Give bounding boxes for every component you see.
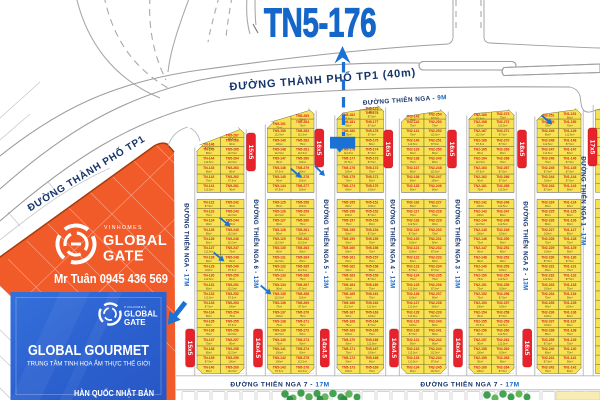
svg-text:TN2-246: TN2-246 (496, 200, 509, 204)
svg-text:TN5-259: TN5-259 (296, 210, 309, 214)
svg-text:80m²: 80m² (477, 259, 483, 263)
svg-text:TN2-231: TN2-231 (541, 265, 554, 269)
svg-text:80m²: 80m² (500, 213, 506, 217)
svg-text:87.5m²: 87.5m² (566, 169, 574, 173)
svg-text:75m²: 75m² (432, 231, 438, 235)
svg-text:TN2-247: TN2-247 (428, 175, 441, 179)
svg-text:TN5-171: TN5-171 (365, 175, 378, 179)
svg-text:TN5-144: TN5-144 (273, 184, 286, 188)
svg-text:TN5-255: TN5-255 (226, 320, 239, 324)
svg-text:ĐƯỜNG THIÊN NGA 7 - 17M: ĐƯỜNG THIÊN NGA 7 - 17M (230, 380, 329, 389)
svg-text:TN2-237: TN2-237 (541, 320, 554, 324)
svg-text:112.5m²: 112.5m² (498, 332, 507, 336)
svg-text:100m²: 100m² (544, 231, 551, 235)
svg-text:TN5-170: TN5-170 (365, 184, 378, 188)
svg-text:TN2-253: TN2-253 (428, 120, 441, 124)
svg-text:TN5-166: TN5-166 (365, 338, 378, 342)
svg-text:112.5m²: 112.5m² (228, 350, 237, 354)
svg-text:TN5-135: TN5-135 (273, 292, 286, 296)
svg-text:GATE: GATE (124, 318, 146, 327)
svg-text:VINHOMES: VINHOMES (124, 305, 146, 309)
svg-text:80m²: 80m² (369, 142, 375, 146)
svg-text:TN2-250: TN2-250 (428, 148, 441, 152)
svg-text:TN2-240: TN2-240 (428, 320, 441, 324)
svg-text:TN5-158: TN5-158 (342, 228, 355, 232)
svg-text:100m²: 100m² (477, 369, 484, 373)
svg-text:80m²: 80m² (276, 160, 282, 164)
svg-text:90m²: 90m² (206, 222, 212, 226)
svg-text:TN5-151: TN5-151 (273, 122, 286, 126)
svg-text:112.5m²: 112.5m² (275, 259, 284, 263)
svg-text:TN5-169: TN5-169 (365, 365, 378, 369)
svg-text:TN2-246: TN2-246 (428, 184, 441, 188)
svg-text:TN5-276: TN5-276 (296, 365, 309, 369)
svg-text:TN1-139: TN1-139 (563, 338, 576, 342)
svg-text:80m²: 80m² (545, 213, 551, 217)
svg-text:TN5-172: TN5-172 (365, 166, 378, 170)
svg-text:80m²: 80m² (477, 250, 483, 254)
svg-text:TN5-155: TN5-155 (365, 237, 378, 241)
svg-text:TN1-130: TN1-130 (563, 255, 576, 259)
svg-text:100m²: 100m² (544, 323, 551, 327)
svg-text:80m²: 80m² (346, 259, 352, 263)
svg-text:100m²: 100m² (205, 268, 212, 272)
svg-text:75m²: 75m² (369, 296, 375, 300)
svg-text:TN2-226: TN2-226 (541, 219, 554, 223)
svg-text:90m²: 90m² (369, 360, 375, 364)
svg-text:ĐƯỜNG THIÊN NGA 7 - 17M: ĐƯỜNG THIÊN NGA 7 - 17M (420, 380, 519, 389)
svg-text:80m²: 80m² (300, 250, 306, 254)
svg-text:90m²: 90m² (346, 296, 352, 300)
svg-text:90m²: 90m² (346, 241, 352, 245)
svg-text:TN2-251: TN2-251 (496, 246, 509, 250)
svg-text:112.5m²: 112.5m² (275, 151, 284, 155)
svg-text:TN2-253: TN2-253 (496, 265, 509, 269)
svg-text:80m²: 80m² (346, 124, 352, 128)
svg-text:TN5-143: TN5-143 (273, 365, 286, 369)
svg-text:112.5m²: 112.5m² (367, 341, 376, 345)
svg-text:TN-144: TN-144 (203, 157, 214, 161)
svg-text:TN5-250: TN5-250 (226, 274, 239, 278)
svg-text:100m²: 100m² (544, 179, 551, 183)
svg-text:112.5m²: 112.5m² (204, 277, 213, 281)
svg-text:TN2-235: TN2-235 (541, 301, 554, 305)
svg-text:TN2-231: TN2-231 (428, 237, 441, 241)
svg-text:TN5-174: TN5-174 (342, 184, 355, 188)
svg-text:80m²: 80m² (567, 231, 573, 235)
svg-text:112.5m²: 112.5m² (204, 296, 213, 300)
svg-text:75m²: 75m² (432, 124, 438, 128)
svg-text:TN-136: TN-136 (203, 329, 214, 333)
svg-text:90m²: 90m² (545, 268, 551, 272)
svg-text:75m²: 75m² (477, 268, 483, 272)
svg-text:TN1-134: TN1-134 (563, 292, 576, 296)
svg-text:TN5-175: TN5-175 (365, 138, 378, 142)
svg-text:90m²: 90m² (545, 204, 551, 208)
svg-text:TN2-261: TN2-261 (496, 338, 509, 342)
svg-text:75m²: 75m² (206, 341, 212, 345)
svg-text:TN1-149: TN1-149 (563, 129, 576, 133)
svg-text:TN2-122: TN2-122 (406, 255, 419, 259)
svg-text:TN2-233: TN2-233 (541, 283, 554, 287)
svg-text:87.5m²: 87.5m² (275, 188, 283, 192)
svg-text:TN5-164: TN5-164 (365, 320, 378, 324)
svg-text:90m²: 90m² (567, 204, 573, 208)
svg-text:TN5-248: TN5-248 (226, 255, 239, 259)
svg-text:87.5m²: 87.5m² (499, 133, 507, 137)
svg-text:TN5-157: TN5-157 (365, 255, 378, 259)
svg-text:90m²: 90m² (477, 341, 483, 345)
svg-text:TN5-265: TN5-265 (226, 148, 239, 152)
svg-text:80m²: 80m² (300, 259, 306, 263)
svg-text:75m²: 75m² (410, 277, 416, 281)
svg-text:112.5m²: 112.5m² (298, 268, 307, 272)
svg-text:90m²: 90m² (229, 204, 235, 208)
svg-text:112.5m²: 112.5m² (565, 133, 574, 137)
svg-text:TN-137: TN-137 (203, 338, 214, 342)
svg-text:TN2-246: TN2-246 (541, 157, 554, 161)
svg-text:TN-124: TN-124 (203, 219, 214, 223)
svg-text:TN2-151: TN2-151 (474, 283, 487, 287)
svg-text:100m²: 100m² (566, 305, 573, 309)
svg-text:100m²: 100m² (299, 188, 306, 192)
svg-text:14x4.5: 14x4.5 (321, 338, 328, 359)
svg-text:TN1-129: TN1-129 (563, 246, 576, 250)
svg-text:TN2-254: TN2-254 (428, 113, 441, 117)
svg-text:TN5-169: TN5-169 (342, 329, 355, 333)
svg-text:100m²: 100m² (345, 286, 352, 290)
svg-text:TN5-163: TN5-163 (365, 310, 378, 314)
svg-text:TN2-139: TN2-139 (406, 148, 419, 152)
svg-text:TN5-285: TN5-285 (296, 114, 309, 118)
svg-text:TN5-254: TN5-254 (226, 310, 239, 314)
svg-text:TN5-266: TN5-266 (296, 274, 309, 278)
svg-text:ĐƯỜNG THIÊN NGA 1 - 17M: ĐƯỜNG THIÊN NGA 1 - 17M (580, 156, 588, 245)
svg-text:TN5-282: TN5-282 (296, 138, 309, 142)
svg-text:TN2-268: TN2-268 (496, 157, 509, 161)
svg-text:100m²: 100m² (276, 314, 283, 318)
svg-text:80m²: 80m² (206, 241, 212, 245)
svg-text:TN2-272: TN2-272 (496, 120, 509, 124)
svg-text:TN2-138: TN2-138 (406, 157, 419, 161)
svg-text:100m²: 100m² (368, 350, 375, 354)
svg-text:100m²: 100m² (499, 305, 506, 309)
svg-text:TN-135: TN-135 (203, 320, 214, 324)
svg-text:100m²: 100m² (477, 350, 484, 354)
svg-text:75m²: 75m² (432, 213, 438, 217)
svg-text:VINHOMES: VINHOMES (104, 225, 143, 231)
svg-text:100m²: 100m² (299, 231, 306, 235)
svg-text:75m²: 75m² (276, 341, 282, 345)
svg-text:75m²: 75m² (369, 369, 375, 373)
svg-text:112.5m²: 112.5m² (275, 241, 284, 245)
svg-text:87.5m²: 87.5m² (298, 286, 306, 290)
svg-text:TN2-269: TN2-269 (496, 148, 509, 152)
svg-text:90m²: 90m² (477, 360, 483, 364)
svg-text:TN1-138: TN1-138 (563, 329, 576, 333)
svg-text:TN2-256: TN2-256 (496, 292, 509, 296)
svg-text:TN5-164: TN5-164 (342, 283, 355, 287)
svg-text:TN2-273: TN2-273 (496, 112, 509, 116)
svg-text:TN5-258: TN5-258 (226, 347, 239, 351)
svg-text:87.5m²: 87.5m² (368, 213, 376, 217)
svg-text:TN5-262: TN5-262 (226, 175, 239, 179)
svg-text:TN5-260: TN5-260 (296, 219, 309, 223)
svg-text:TN5-147: TN5-147 (273, 157, 286, 161)
svg-text:ĐƯỜNG THIÊN NGA 4 - 13M: ĐƯỜNG THIÊN NGA 4 - 13M (389, 199, 397, 288)
svg-text:75m²: 75m² (410, 133, 416, 137)
svg-text:TN-128: TN-128 (203, 255, 214, 259)
svg-text:75m²: 75m² (346, 133, 352, 137)
svg-text:90m²: 90m² (300, 169, 306, 173)
svg-text:112.5m²: 112.5m² (498, 323, 507, 327)
svg-text:TN2-230: TN2-230 (541, 255, 554, 259)
svg-text:87.5m²: 87.5m² (476, 323, 484, 327)
svg-text:TN5-165: TN5-165 (365, 329, 378, 333)
svg-text:87.5m²: 87.5m² (431, 142, 439, 146)
svg-text:80m²: 80m² (369, 268, 375, 272)
svg-text:112.5m²: 112.5m² (476, 222, 485, 226)
svg-text:TN1-145: TN1-145 (563, 166, 576, 170)
svg-text:112.5m²: 112.5m² (275, 332, 284, 336)
svg-text:75m²: 75m² (477, 286, 483, 290)
svg-text:87.5m²: 87.5m² (228, 323, 236, 327)
svg-text:TN5-268: TN5-268 (296, 292, 309, 296)
svg-text:15x5: 15x5 (247, 145, 254, 160)
svg-text:TN-138: TN-138 (203, 347, 214, 351)
svg-text:TN2-155: TN2-155 (474, 320, 487, 324)
svg-text:TN2-156: TN2-156 (474, 329, 487, 333)
svg-text:100m²: 100m² (544, 314, 551, 318)
svg-text:87.5m²: 87.5m² (476, 169, 484, 173)
svg-text:87.5m²: 87.5m² (368, 151, 376, 155)
svg-text:87.5m²: 87.5m² (499, 314, 507, 318)
svg-text:TN2-266: TN2-266 (496, 175, 509, 179)
svg-text:TN-141: TN-141 (203, 184, 214, 188)
svg-text:TN5-156: TN5-156 (342, 210, 355, 214)
svg-text:GLOBAL: GLOBAL (103, 233, 167, 249)
svg-text:TN2-159: TN2-159 (474, 356, 487, 360)
svg-text:80m²: 80m² (410, 169, 416, 173)
svg-text:TN-130: TN-130 (203, 274, 214, 278)
svg-text:75m²: 75m² (206, 179, 212, 183)
svg-text:TN5-138: TN5-138 (273, 320, 286, 324)
svg-text:TN2-149: TN2-149 (474, 265, 487, 269)
svg-text:TN5-264: TN5-264 (226, 157, 239, 161)
svg-text:80m²: 80m² (477, 314, 483, 318)
svg-text:87.5m²: 87.5m² (544, 341, 552, 345)
svg-text:TN1-146: TN1-146 (563, 157, 576, 161)
svg-text:90m²: 90m² (410, 341, 416, 345)
svg-text:80m²: 80m² (206, 369, 212, 373)
svg-text:112.5m²: 112.5m² (275, 213, 284, 217)
svg-text:112.5m²: 112.5m² (298, 360, 307, 364)
svg-text:100m²: 100m² (368, 314, 375, 318)
svg-text:TN5-262: TN5-262 (296, 237, 309, 241)
svg-text:90m²: 90m² (500, 360, 506, 364)
svg-text:80m²: 80m² (545, 350, 551, 354)
svg-text:TN2-164: TN2-164 (474, 157, 487, 161)
svg-text:75m²: 75m² (206, 332, 212, 336)
svg-text:TN2-141: TN2-141 (406, 129, 419, 133)
svg-text:TN5-173: TN5-173 (342, 365, 355, 369)
svg-text:TN2-262: TN2-262 (496, 347, 509, 351)
svg-text:87.5m²: 87.5m² (499, 169, 507, 173)
svg-text:TN2-241: TN2-241 (541, 356, 554, 360)
svg-text:100m²: 100m² (368, 204, 375, 208)
svg-text:100m²: 100m² (431, 179, 438, 183)
svg-text:100m²: 100m² (499, 268, 506, 272)
svg-text:ĐƯỜNG THIÊN NGA - 17M: ĐƯỜNG THIÊN NGA - 17M (183, 203, 191, 286)
svg-text:80m²: 80m² (432, 204, 438, 208)
svg-text:TN5-125: TN5-125 (273, 200, 286, 204)
svg-text:112.5m²: 112.5m² (543, 151, 552, 155)
svg-text:TN2-158: TN2-158 (474, 347, 487, 351)
svg-text:87.5m²: 87.5m² (368, 133, 376, 137)
svg-text:TN5-280: TN5-280 (296, 157, 309, 161)
svg-text:87.5m²: 87.5m² (431, 286, 439, 290)
svg-text:TN5-251: TN5-251 (226, 283, 239, 287)
svg-text:100m²: 100m² (276, 142, 283, 146)
svg-text:112.5m²: 112.5m² (430, 369, 439, 373)
svg-text:75m²: 75m² (369, 169, 375, 173)
svg-text:80m²: 80m² (432, 341, 438, 345)
svg-text:80m²: 80m² (545, 133, 551, 137)
svg-text:TN-122: TN-122 (203, 200, 214, 204)
svg-text:100m²: 100m² (229, 360, 236, 364)
svg-text:100m²: 100m² (477, 124, 484, 128)
svg-text:TN2-117: TN2-117 (406, 210, 419, 214)
svg-text:80m²: 80m² (432, 160, 438, 164)
svg-text:75m²: 75m² (410, 118, 416, 122)
svg-text:90m²: 90m² (567, 296, 573, 300)
svg-text:87.5m²: 87.5m² (566, 179, 574, 183)
svg-text:112.5m²: 112.5m² (228, 332, 237, 336)
svg-text:TN2-165: TN2-165 (474, 148, 487, 152)
svg-text:80m²: 80m² (276, 231, 282, 235)
svg-text:112.5m²: 112.5m² (498, 188, 507, 192)
svg-text:112.5m²: 112.5m² (476, 160, 485, 164)
svg-text:87.5m²: 87.5m² (499, 296, 507, 300)
svg-text:87.5m²: 87.5m² (275, 169, 283, 173)
svg-text:TN5-140: TN5-140 (273, 338, 286, 342)
svg-text:112.5m²: 112.5m² (430, 350, 439, 354)
svg-text:100m²: 100m² (477, 231, 484, 235)
svg-text:TN2-143: TN2-143 (474, 210, 487, 214)
svg-text:87.5m²: 87.5m² (409, 332, 417, 336)
svg-text:TN5-274: TN5-274 (296, 347, 309, 351)
svg-text:75m²: 75m² (500, 115, 506, 119)
svg-text:TN5-243: TN5-243 (226, 210, 239, 214)
svg-text:87.5m²: 87.5m² (431, 116, 439, 120)
svg-text:TN5-170: TN5-170 (342, 338, 355, 342)
svg-text:TN2-260: TN2-260 (496, 329, 509, 333)
svg-text:TN5-168: TN5-168 (342, 320, 355, 324)
svg-text:75m²: 75m² (369, 259, 375, 263)
svg-text:75m²: 75m² (567, 341, 573, 345)
svg-text:80m²: 80m² (567, 369, 573, 373)
svg-text:TN1-128: TN1-128 (563, 237, 576, 241)
svg-text:75m²: 75m² (567, 241, 573, 245)
svg-text:87.5m²: 87.5m² (544, 188, 552, 192)
svg-text:16x5: 16x5 (384, 142, 391, 157)
svg-text:87.5m²: 87.5m² (228, 179, 236, 183)
svg-text:16x5: 16x5 (315, 141, 322, 156)
svg-text:TN-125: TN-125 (203, 228, 214, 232)
svg-text:TN2-144: TN2-144 (474, 219, 487, 223)
svg-text:TN5-272: TN5-272 (296, 329, 309, 333)
svg-text:TN5-157: TN5-157 (342, 219, 355, 223)
svg-text:TN2-123: TN2-123 (406, 265, 419, 269)
svg-text:80m²: 80m² (229, 259, 235, 263)
svg-text:80m²: 80m² (206, 314, 212, 318)
svg-text:90m²: 90m² (346, 268, 352, 272)
svg-text:14x4.5: 14x4.5 (454, 338, 461, 359)
svg-text:TN1-148: TN1-148 (563, 138, 576, 142)
svg-text:75m²: 75m² (477, 277, 483, 281)
svg-text:90m²: 90m² (410, 179, 416, 183)
svg-text:TN2-227: TN2-227 (541, 228, 554, 232)
svg-text:90m²: 90m² (567, 222, 573, 226)
svg-text:80m²: 80m² (432, 259, 438, 263)
svg-text:TN5-246: TN5-246 (226, 237, 239, 241)
svg-text:TN2-263: TN2-263 (496, 356, 509, 360)
svg-text:100m²: 100m² (499, 350, 506, 354)
svg-text:87.5m²: 87.5m² (368, 231, 376, 235)
svg-text:90m²: 90m² (276, 286, 282, 290)
svg-text:TN2-267: TN2-267 (496, 166, 509, 170)
svg-text:112.5m²: 112.5m² (298, 241, 307, 245)
svg-text:112.5m²: 112.5m² (498, 341, 507, 345)
svg-text:TN5-141: TN5-141 (273, 347, 286, 351)
svg-text:87.5m²: 87.5m² (431, 268, 439, 272)
svg-text:TN5-168: TN5-168 (365, 356, 378, 360)
svg-text:80m²: 80m² (300, 332, 306, 336)
svg-text:TN5-279: TN5-279 (296, 166, 309, 170)
svg-text:80m²: 80m² (432, 323, 438, 327)
svg-text:TN5-137: TN5-137 (273, 310, 286, 314)
svg-text:90m²: 90m² (567, 115, 573, 119)
svg-text:100m²: 100m² (345, 169, 352, 173)
svg-text:112.5m²: 112.5m² (498, 277, 507, 281)
svg-text:TN2-248: TN2-248 (541, 138, 554, 142)
svg-text:100m²: 100m² (477, 204, 484, 208)
svg-text:TN5-163: TN5-163 (342, 274, 355, 278)
svg-text:87.5m²: 87.5m² (298, 305, 306, 309)
svg-text:TN2-238: TN2-238 (541, 329, 554, 333)
svg-text:87.5m²: 87.5m² (476, 116, 484, 120)
svg-text:87.5m²: 87.5m² (368, 114, 376, 118)
svg-text:112.5m²: 112.5m² (408, 286, 417, 290)
svg-text:TN2-245: TN2-245 (541, 166, 554, 170)
svg-text:TN5-179: TN5-179 (365, 106, 378, 110)
svg-text:87.5m²: 87.5m² (205, 305, 213, 309)
svg-text:TN2-146: TN2-146 (474, 237, 487, 241)
svg-text:80m²: 80m² (432, 188, 438, 192)
svg-text:TN5-149: TN5-149 (273, 138, 286, 142)
svg-text:80m²: 80m² (545, 332, 551, 336)
svg-text:ĐƯỜNG THIÊN NGA 3 - 13M: ĐƯỜNG THIÊN NGA 3 - 13M (454, 199, 462, 288)
svg-text:75m²: 75m² (276, 277, 282, 281)
svg-text:TN5-159: TN5-159 (365, 274, 378, 278)
svg-text:75m²: 75m² (410, 213, 416, 217)
svg-text:75m²: 75m² (300, 142, 306, 146)
svg-text:TN1-142: TN1-142 (563, 365, 576, 369)
svg-text:87.5m²: 87.5m² (566, 259, 574, 263)
svg-text:TN5-273: TN5-273 (296, 338, 309, 342)
svg-text:90m²: 90m² (346, 314, 352, 318)
svg-text:75m²: 75m² (346, 179, 352, 183)
